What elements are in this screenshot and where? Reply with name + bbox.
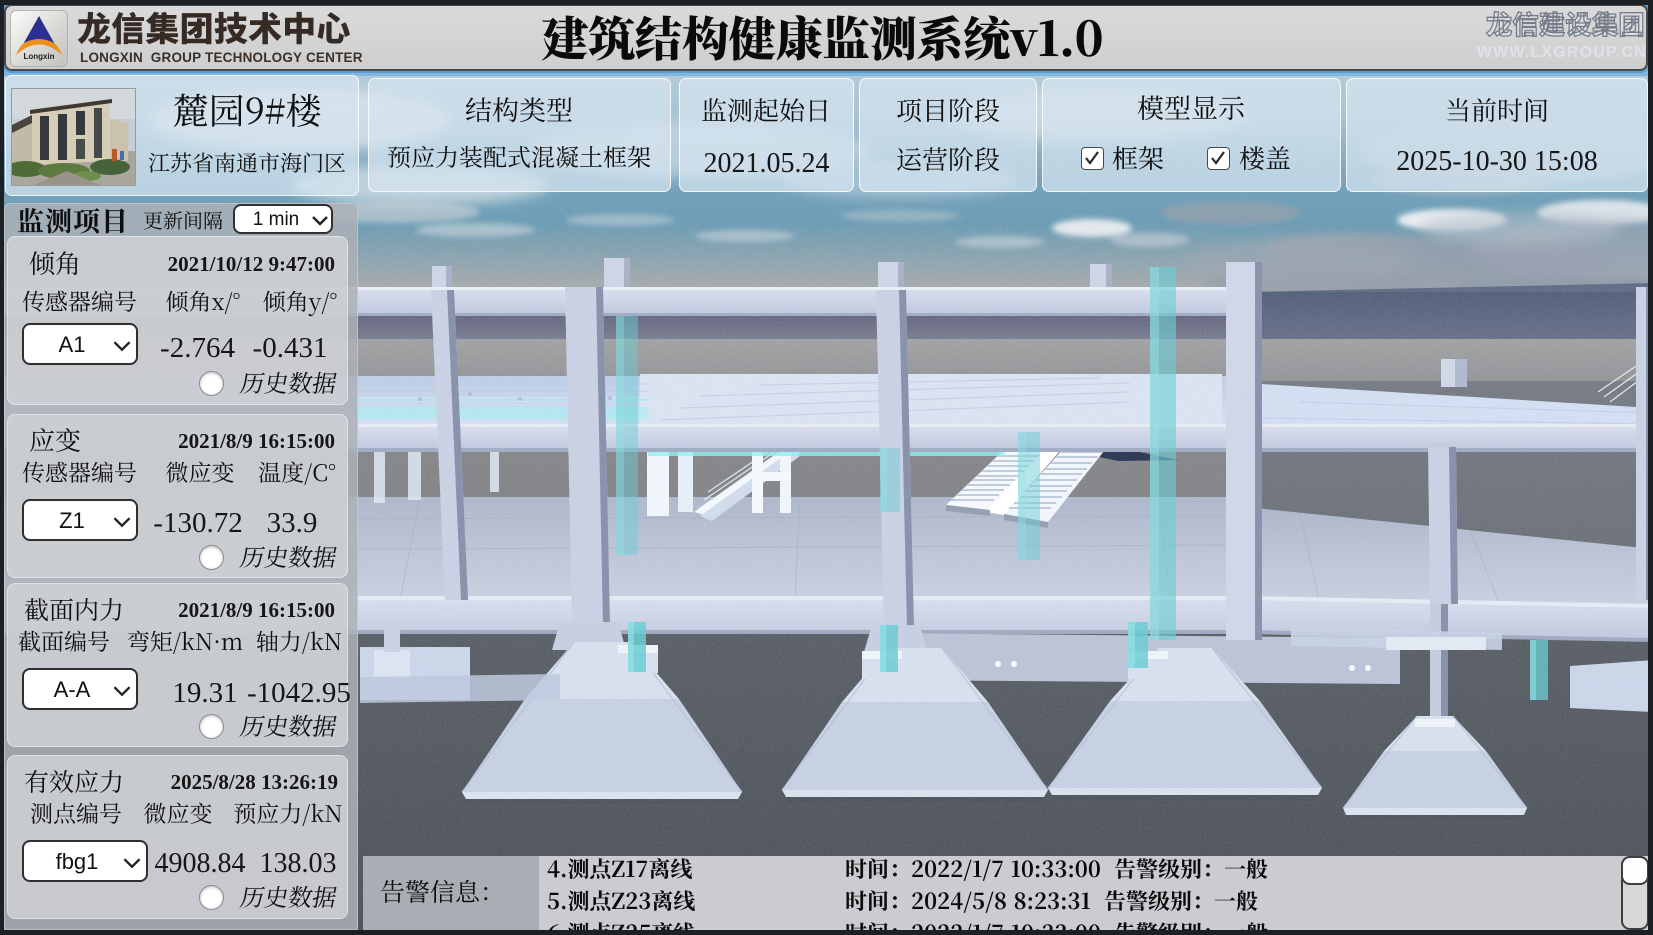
svg-text:Longxin: Longxin bbox=[23, 52, 54, 61]
